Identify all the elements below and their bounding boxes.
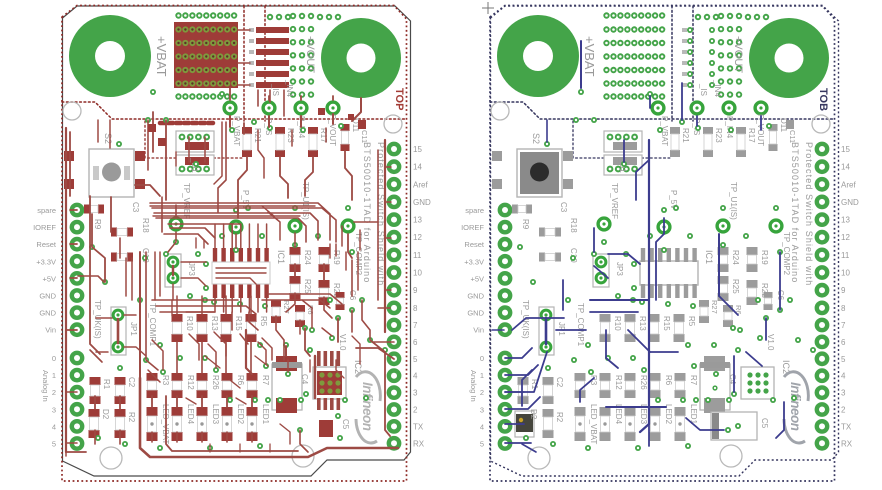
svg-text:R15: R15 <box>234 316 243 331</box>
svg-text:4: 4 <box>52 422 56 431</box>
svg-text:R13: R13 <box>638 316 647 331</box>
svg-text:R6: R6 <box>664 375 673 386</box>
svg-text:spare: spare <box>37 206 56 215</box>
svg-text:R6: R6 <box>236 375 245 386</box>
svg-text:JP3: JP3 <box>615 262 624 276</box>
svg-text:R5: R5 <box>687 316 696 327</box>
svg-text:_IS: _IS <box>271 83 280 96</box>
svg-text:C2: C2 <box>555 377 564 388</box>
svg-text:IC1: IC1 <box>276 250 286 264</box>
svg-text:3: 3 <box>52 405 56 414</box>
svg-text:C4: C4 <box>728 374 737 385</box>
svg-text:TP_COMP1: TP_COMP1 <box>576 303 585 347</box>
svg-text:3: 3 <box>841 389 846 398</box>
svg-text:11: 11 <box>841 251 850 260</box>
svg-text:4: 4 <box>480 422 484 431</box>
svg-text:P_IN4: P_IN4 <box>725 116 734 139</box>
svg-text:+VOUT: +VOUT <box>304 36 316 73</box>
svg-text:V1.0: V1.0 <box>338 334 347 351</box>
svg-text:R23: R23 <box>714 128 723 143</box>
svg-text:1: 1 <box>52 371 56 380</box>
svg-text:R21: R21 <box>681 128 690 143</box>
svg-text:LED4: LED4 <box>186 404 195 425</box>
svg-text:LED_VBAT: LED_VBAT <box>589 404 598 444</box>
svg-text:5: 5 <box>52 440 56 449</box>
svg-text:Analog In: Analog In <box>469 370 478 402</box>
svg-text:5: 5 <box>413 355 418 364</box>
svg-text:JP1: JP1 <box>129 322 138 336</box>
svg-text:2: 2 <box>52 388 56 397</box>
svg-text:9: 9 <box>841 286 846 295</box>
svg-text:IOREF: IOREF <box>461 223 484 232</box>
svg-text:4: 4 <box>841 372 846 381</box>
svg-text:+3.3V: +3.3V <box>464 257 484 266</box>
svg-text:R7: R7 <box>689 375 698 386</box>
svg-text:R1: R1 <box>102 379 111 390</box>
svg-text:3: 3 <box>480 405 484 414</box>
svg-text:Reset: Reset <box>36 240 57 249</box>
svg-text:TP_U1(IS): TP_U1(IS) <box>729 182 738 220</box>
svg-text:Aref: Aref <box>841 180 856 189</box>
svg-text:GND: GND <box>467 292 484 301</box>
svg-text:2: 2 <box>413 406 418 415</box>
svg-text:+VBAT: +VBAT <box>154 36 169 77</box>
svg-text:C5: C5 <box>341 419 350 430</box>
svg-text:1: 1 <box>480 371 484 380</box>
svg-text:_IS: _IS <box>699 83 708 96</box>
svg-text:GND: GND <box>39 309 56 318</box>
svg-text:6: 6 <box>413 338 418 347</box>
svg-text:8: 8 <box>413 304 418 313</box>
svg-text:S2: S2 <box>103 133 113 144</box>
svg-text:R9: R9 <box>93 219 102 230</box>
svg-text:6: 6 <box>841 338 846 347</box>
svg-text:TX: TX <box>841 422 852 431</box>
svg-text:R26: R26 <box>639 375 648 390</box>
svg-text:13: 13 <box>413 216 422 225</box>
svg-text:Analog In: Analog In <box>41 370 50 402</box>
svg-text:+VOUT: +VOUT <box>732 36 744 73</box>
svg-text:BTS50010-1TAD for Arduino: BTS50010-1TAD for Arduino <box>362 142 372 283</box>
svg-text:R17: R17 <box>747 128 756 143</box>
svg-text:TOP: TOP <box>393 88 405 110</box>
svg-text:S2: S2 <box>531 133 541 144</box>
svg-text:4: 4 <box>413 372 418 381</box>
svg-text:R23: R23 <box>286 128 295 143</box>
svg-text:R24: R24 <box>303 250 312 265</box>
svg-text:C2: C2 <box>127 377 136 388</box>
svg-text:V1.0: V1.0 <box>766 334 775 351</box>
svg-text:0: 0 <box>480 354 484 363</box>
svg-text:R9: R9 <box>521 219 530 230</box>
svg-text:_IN4: _IN4 <box>285 79 294 97</box>
svg-text:R3: R3 <box>161 375 170 386</box>
svg-text:Reset: Reset <box>464 240 485 249</box>
svg-text:13: 13 <box>841 216 850 225</box>
svg-text:5: 5 <box>841 355 846 364</box>
svg-text:GND: GND <box>39 292 56 301</box>
svg-text:JP3: JP3 <box>187 262 196 276</box>
svg-text:D2: D2 <box>529 409 538 420</box>
svg-text:RX: RX <box>841 439 853 448</box>
svg-text:12: 12 <box>413 233 422 242</box>
svg-text:9: 9 <box>413 286 418 295</box>
svg-text:R24: R24 <box>731 250 740 265</box>
svg-text:LED1: LED1 <box>261 404 270 425</box>
svg-text:5: 5 <box>480 440 484 449</box>
svg-text:spare: spare <box>465 206 484 215</box>
svg-text:R10: R10 <box>185 316 194 331</box>
svg-text:Infineon: Infineon <box>788 382 803 431</box>
svg-text:_IN4: _IN4 <box>713 79 722 97</box>
svg-text:R15: R15 <box>662 316 671 331</box>
svg-text:GND: GND <box>467 309 484 318</box>
svg-text:IOREF: IOREF <box>33 223 56 232</box>
svg-text:R18: R18 <box>569 218 578 233</box>
svg-text:C4: C4 <box>300 374 309 385</box>
svg-text:R27: R27 <box>710 300 719 314</box>
svg-text:R18: R18 <box>141 218 150 233</box>
svg-text:R10: R10 <box>613 316 622 331</box>
svg-text:TP_COMP2: TP_COMP2 <box>782 232 791 276</box>
svg-text:14: 14 <box>841 163 850 172</box>
svg-text:12: 12 <box>841 233 850 242</box>
svg-text:C5: C5 <box>760 418 769 429</box>
svg-text:0: 0 <box>52 354 56 363</box>
svg-text:+5V: +5V <box>470 274 484 283</box>
svg-text:LED3: LED3 <box>211 404 220 425</box>
svg-text:15: 15 <box>413 145 422 154</box>
svg-text:Vin: Vin <box>45 326 56 335</box>
svg-text:D2: D2 <box>101 409 110 420</box>
svg-text:R2: R2 <box>555 412 564 423</box>
svg-text:15: 15 <box>841 145 850 154</box>
svg-text:Infineon: Infineon <box>360 382 375 431</box>
svg-text:R12: R12 <box>614 375 623 390</box>
svg-text:10: 10 <box>841 269 850 278</box>
svg-text:LED2: LED2 <box>236 404 245 425</box>
svg-text:14: 14 <box>413 163 422 172</box>
svg-text:R7: R7 <box>261 375 270 386</box>
svg-text:Aref: Aref <box>413 180 428 189</box>
svg-text:R5: R5 <box>259 316 268 327</box>
svg-text:R19: R19 <box>760 250 769 265</box>
svg-text:BTS50010-1TAD for Arduino: BTS50010-1TAD for Arduino <box>790 142 800 283</box>
svg-text:C3: C3 <box>131 202 140 213</box>
svg-text:2: 2 <box>841 406 846 415</box>
svg-text:7: 7 <box>841 321 846 330</box>
svg-text:7: 7 <box>413 321 418 330</box>
svg-text:GND: GND <box>841 198 859 207</box>
svg-text:TOB: TOB <box>817 88 829 111</box>
svg-text:R12: R12 <box>186 375 195 390</box>
svg-text:TX: TX <box>413 422 424 431</box>
svg-text:TP_VREF: TP_VREF <box>610 183 619 219</box>
svg-text:Vin: Vin <box>473 326 484 335</box>
svg-text:Protected Switch Shield with: Protected Switch Shield with <box>804 142 814 286</box>
svg-text:R2: R2 <box>127 412 136 423</box>
svg-text:TP_UK(IS): TP_UK(IS) <box>93 300 102 339</box>
svg-text:R26: R26 <box>211 375 220 390</box>
svg-text:RX: RX <box>413 439 425 448</box>
svg-text:IC1: IC1 <box>704 250 714 264</box>
svg-text:+3.3V: +3.3V <box>36 257 56 266</box>
svg-text:+VBAT: +VBAT <box>582 36 597 77</box>
svg-text:+5V: +5V <box>42 274 56 283</box>
svg-text:C3: C3 <box>559 202 568 213</box>
svg-text:R13: R13 <box>210 316 219 331</box>
svg-text:R25: R25 <box>731 279 740 294</box>
svg-text:2: 2 <box>480 388 484 397</box>
svg-text:GND: GND <box>413 198 431 207</box>
svg-text:8: 8 <box>841 304 846 313</box>
svg-text:3: 3 <box>413 389 418 398</box>
svg-text:11: 11 <box>413 251 422 260</box>
svg-text:10: 10 <box>413 269 422 278</box>
svg-text:R25: R25 <box>303 279 312 294</box>
